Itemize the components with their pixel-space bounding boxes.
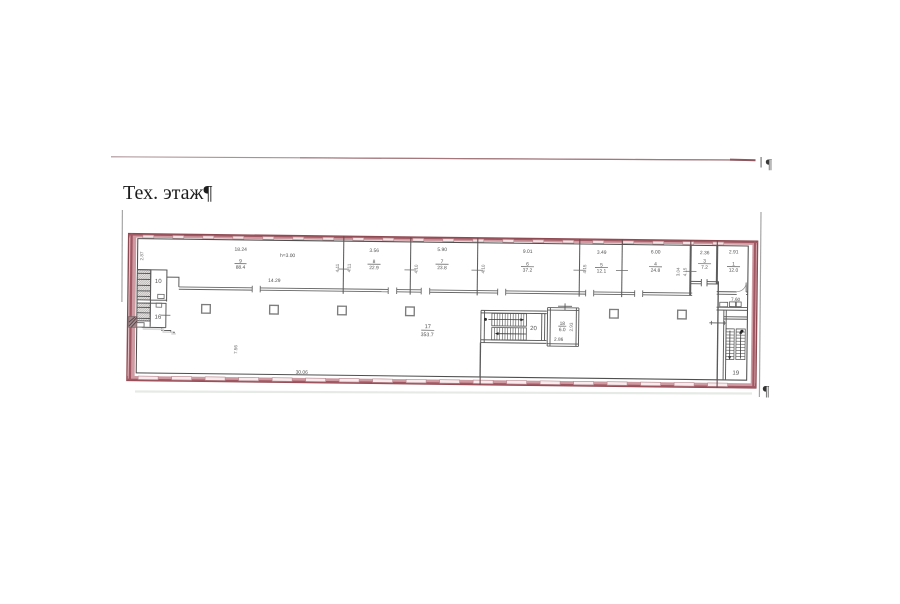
svg-text:2.87: 2.87 bbox=[139, 251, 144, 260]
svg-text:18.24: 18.24 bbox=[235, 247, 248, 253]
svg-text:6.00: 6.00 bbox=[651, 249, 661, 255]
svg-text:Тех. этаж¶: Тех. этаж¶ bbox=[123, 182, 212, 204]
svg-text:30.06: 30.06 bbox=[296, 370, 309, 376]
svg-text:7.56: 7.56 bbox=[233, 345, 238, 354]
svg-text:14.29: 14.29 bbox=[268, 278, 281, 284]
svg-text:¶: ¶ bbox=[766, 157, 773, 172]
svg-text:4.11: 4.11 bbox=[347, 263, 352, 272]
svg-text:23.8: 23.8 bbox=[437, 265, 447, 271]
svg-text:7.60: 7.60 bbox=[731, 297, 741, 302]
svg-text:2.36: 2.36 bbox=[700, 250, 710, 256]
svg-text:4.11: 4.11 bbox=[335, 263, 340, 272]
svg-text:88.4: 88.4 bbox=[236, 265, 246, 271]
svg-text:4.15: 4.15 bbox=[582, 264, 587, 273]
svg-text:12.0: 12.0 bbox=[729, 268, 739, 274]
svg-text:3.04: 3.04 bbox=[676, 267, 681, 276]
svg-text:12.1: 12.1 bbox=[597, 269, 607, 275]
svg-text:7.2: 7.2 bbox=[701, 265, 708, 271]
svg-text:37.2: 37.2 bbox=[523, 268, 533, 274]
svg-text:2.86: 2.86 bbox=[554, 337, 564, 342]
svg-text:2.93: 2.93 bbox=[569, 322, 574, 331]
svg-text:4.10: 4.10 bbox=[481, 264, 486, 273]
svg-text:24.8: 24.8 bbox=[651, 268, 661, 274]
svg-text:4.15: 4.15 bbox=[682, 267, 687, 276]
svg-text:4.10: 4.10 bbox=[414, 264, 419, 273]
svg-text:3.49: 3.49 bbox=[597, 250, 607, 256]
svg-text:h=3.00: h=3.00 bbox=[280, 253, 295, 259]
svg-text:5.90: 5.90 bbox=[437, 247, 447, 253]
svg-text:10: 10 bbox=[155, 278, 162, 285]
svg-text:353.7: 353.7 bbox=[421, 332, 434, 338]
svg-text:¶: ¶ bbox=[763, 384, 770, 400]
svg-text:6.0: 6.0 bbox=[559, 327, 566, 333]
svg-text:2.91: 2.91 bbox=[729, 249, 739, 255]
svg-text:19: 19 bbox=[732, 370, 739, 377]
svg-text:9.01: 9.01 bbox=[523, 249, 533, 255]
svg-text:17: 17 bbox=[425, 324, 431, 330]
svg-text:3.56: 3.56 bbox=[369, 248, 379, 254]
svg-text:22.9: 22.9 bbox=[369, 265, 379, 271]
svg-text:20: 20 bbox=[530, 325, 537, 332]
